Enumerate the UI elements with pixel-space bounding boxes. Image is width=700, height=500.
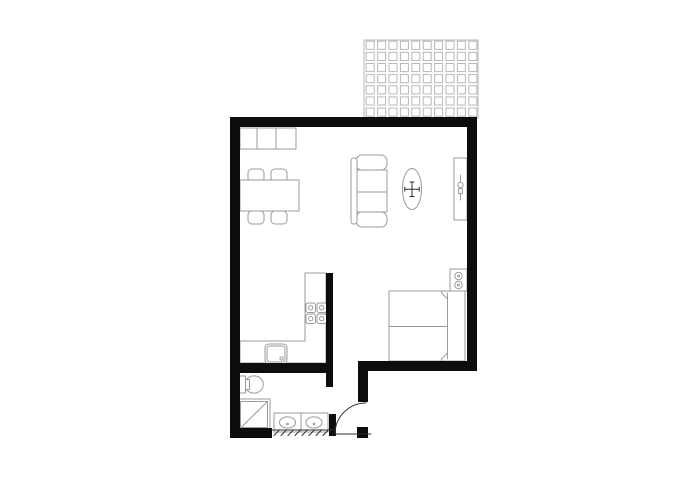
left-wall [230,117,240,438]
balcony-tile [423,52,431,60]
sofa-seat-cushion [357,170,387,192]
shower-tray [238,399,270,430]
balcony-tile [389,63,397,71]
balcony-tile [400,86,408,94]
balcony-tile [457,52,465,60]
balcony-tile [366,97,374,105]
balcony-tile [400,97,408,105]
balcony-tile [423,63,431,71]
dining-table [240,180,299,211]
balcony-tile [378,97,386,105]
furniture-layer [238,128,467,432]
balcony-tile [423,41,431,49]
sofa [351,155,387,227]
balcony-tile [435,75,443,83]
balcony-tile [446,75,454,83]
balcony-tile [469,52,477,60]
burner [306,314,316,324]
balcony-tile [366,63,374,71]
double-sink-vanity [274,413,328,432]
balcony-tile-grid [364,40,478,118]
balcony-tile [446,86,454,94]
balcony-tile [378,75,386,83]
balcony-tile [446,63,454,71]
balcony-tile [469,108,477,116]
wardrobe-outline [240,128,296,149]
balcony-tile [400,108,408,116]
bedroom-bottom-wall [368,361,477,371]
kitchen-partition-wall [326,273,333,387]
sofa-backrest [351,158,357,224]
sofa-armrest-bottom [356,212,387,227]
balcony-tile [389,97,397,105]
bathroom-bottom-wall [230,428,272,438]
balcony-tile [400,63,408,71]
nightstand-with-lamp [450,269,467,291]
burner [317,303,327,313]
kitchen-sink [265,344,287,364]
balcony-tile [423,86,431,94]
balcony-tile [412,75,420,83]
balcony-tile [412,108,420,116]
balcony-tile [457,41,465,49]
balcony-tile [435,108,443,116]
balcony-tile [457,86,465,94]
toilet [239,376,263,393]
floor-plan-canvas [0,0,700,500]
wardrobe-cabinet [240,128,296,149]
balcony-tile [366,86,374,94]
balcony-tile [423,108,431,116]
balcony-tile [366,108,374,116]
entry-door-jamb-wall [358,361,368,402]
balcony-tile [469,75,477,83]
balcony-tile [457,75,465,83]
balcony-tile [400,41,408,49]
balcony-tile [435,63,443,71]
balcony-tile [435,86,443,94]
balcony-tile [469,97,477,105]
balcony-tile [378,86,386,94]
balcony-tile [412,63,420,71]
balcony-tile [435,97,443,105]
dining-chair [248,211,264,224]
sink-outline [265,344,287,364]
balcony-tile [457,63,465,71]
balcony-tile [446,108,454,116]
balcony-tile [446,97,454,105]
balcony-tile [446,52,454,60]
balcony-tile [457,97,465,105]
balcony-tile [446,41,454,49]
balcony-tile [366,41,374,49]
balcony-tile [412,41,420,49]
balcony-tile [389,86,397,94]
bathroom-top-wall [230,363,333,373]
balcony-tile [412,86,420,94]
balcony-tile [469,63,477,71]
balcony-tile [378,52,386,60]
burner [317,314,327,324]
tv-symbol-knob [458,182,463,187]
entry-corner-post [357,427,368,438]
double-bed [389,291,465,361]
balcony-tile [423,75,431,83]
top-wall [230,117,477,127]
balcony-tile [389,41,397,49]
burner [306,303,316,313]
balcony-tile [389,52,397,60]
balcony-tile [412,97,420,105]
tv-symbol-base [459,189,463,194]
sofa-armrest-top [356,155,387,170]
balcony-tile [435,41,443,49]
balcony-border [364,40,478,118]
right-wall [467,117,477,371]
balcony-tile [469,41,477,49]
balcony-tile [378,41,386,49]
tv-cabinet [454,158,467,220]
sofa-seat-cushion [357,192,387,212]
balcony-tile [378,108,386,116]
balcony-tile [469,86,477,94]
balcony-tile [400,52,408,60]
balcony-tile [378,63,386,71]
balcony-tile [400,75,408,83]
balcony-tile [366,52,374,60]
balcony-tile [423,97,431,105]
floor-plan [0,0,700,500]
balcony-tile [366,75,374,83]
dining-chair [271,211,287,224]
balcony-tile [457,108,465,116]
balcony-tile [389,108,397,116]
balcony-tile [435,52,443,60]
balcony-tile [389,75,397,83]
balcony-tile [412,52,420,60]
